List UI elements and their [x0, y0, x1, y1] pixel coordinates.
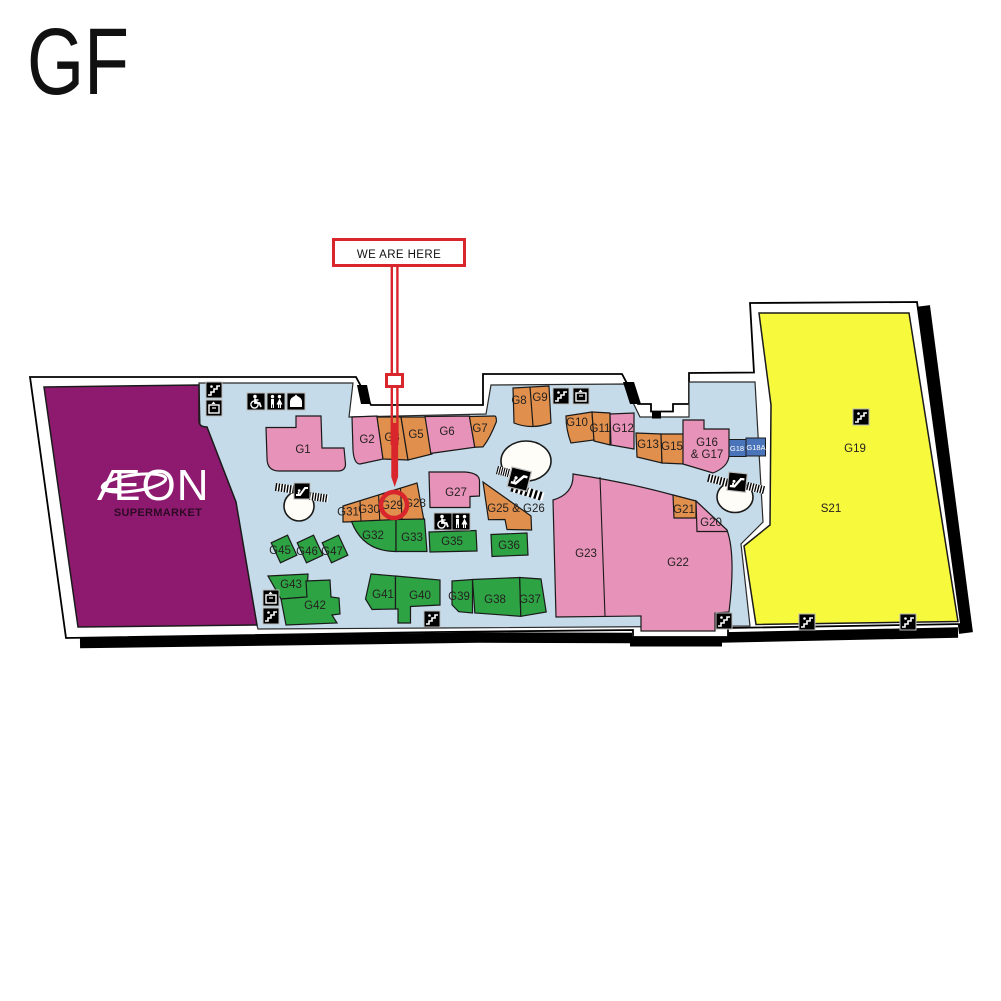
svg-text:& G17: & G17: [691, 449, 724, 461]
svg-text:WE ARE HERE: WE ARE HERE: [357, 249, 441, 261]
svg-text:G15: G15: [661, 441, 683, 453]
svg-text:G45: G45: [269, 545, 291, 557]
svg-text:G39: G39: [448, 591, 470, 603]
svg-text:G31: G31: [337, 507, 359, 519]
svg-text:G42: G42: [304, 600, 326, 612]
svg-text:G25 & G26: G25 & G26: [487, 503, 545, 515]
svg-text:G30: G30: [358, 504, 380, 516]
svg-text:G9: G9: [532, 392, 547, 404]
svg-text:G40: G40: [409, 590, 431, 602]
svg-text:G10: G10: [566, 417, 588, 429]
svg-text:G20: G20: [700, 517, 722, 529]
svg-text:S21: S21: [821, 503, 841, 515]
svg-text:G1: G1: [295, 444, 310, 456]
svg-text:G27: G27: [445, 487, 467, 499]
svg-text:G5: G5: [408, 429, 423, 441]
svg-text:G37: G37: [519, 594, 541, 606]
svg-text:G8: G8: [511, 395, 526, 407]
svg-text:G33: G33: [401, 532, 423, 544]
svg-text:G32: G32: [362, 530, 384, 542]
svg-text:G7: G7: [472, 423, 487, 435]
svg-text:GF: GF: [27, 9, 129, 115]
svg-text:G12: G12: [612, 423, 634, 435]
svg-text:G36: G36: [498, 540, 520, 552]
svg-text:G23: G23: [575, 548, 597, 560]
svg-text:G18: G18: [730, 444, 744, 453]
svg-text:G16: G16: [696, 437, 718, 449]
svg-text:G19: G19: [844, 443, 866, 455]
svg-text:G11: G11: [590, 423, 611, 435]
svg-text:G35: G35: [441, 536, 463, 548]
svg-text:G21: G21: [673, 504, 695, 516]
svg-text:G43: G43: [280, 579, 302, 591]
svg-text:G46: G46: [296, 546, 318, 558]
svg-text:G38: G38: [484, 594, 506, 606]
svg-text:G18A: G18A: [746, 443, 765, 452]
svg-text:G13: G13: [637, 439, 659, 451]
svg-text:G22: G22: [667, 557, 689, 569]
svg-text:SUPERMARKET: SUPERMARKET: [114, 507, 202, 519]
svg-text:G47: G47: [321, 546, 343, 558]
svg-text:G2: G2: [359, 434, 374, 446]
svg-text:G6: G6: [439, 426, 454, 438]
svg-text:G41: G41: [372, 589, 394, 601]
